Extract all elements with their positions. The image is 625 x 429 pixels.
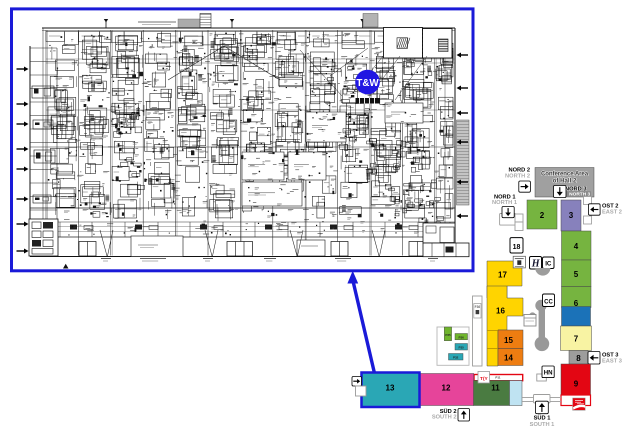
svg-text:IC: IC <box>545 261 552 268</box>
svg-text:P35: P35 <box>445 333 451 337</box>
svg-text:18: 18 <box>513 244 521 251</box>
svg-text:Conference Area: Conference Area <box>541 170 589 177</box>
svg-text:HN: HN <box>544 370 553 377</box>
svg-text:4: 4 <box>574 242 579 251</box>
svg-text:P35: P35 <box>459 346 465 350</box>
svg-text:F36: F36 <box>475 305 481 309</box>
svg-text:5: 5 <box>574 270 579 279</box>
svg-text:SÜD 1: SÜD 1 <box>534 415 551 422</box>
svg-text:EAST 3: EAST 3 <box>602 359 622 365</box>
svg-text:SOUTH 2: SOUTH 2 <box>432 415 457 421</box>
svg-text:7: 7 <box>574 335 579 344</box>
svg-text:CC: CC <box>544 299 553 305</box>
svg-text:SOUTH 1: SOUTH 1 <box>530 422 555 428</box>
svg-text:NORTH 2: NORTH 2 <box>505 173 530 179</box>
svg-text:15: 15 <box>504 336 513 345</box>
svg-text:EAST 2: EAST 2 <box>602 209 622 215</box>
svg-text:T(Y: T(Y <box>480 376 489 382</box>
svg-text:8: 8 <box>576 354 581 363</box>
svg-text:NORTH 1: NORTH 1 <box>492 200 517 206</box>
svg-text:P36: P36 <box>459 335 465 339</box>
svg-text:9: 9 <box>574 380 579 389</box>
svg-text:3: 3 <box>569 211 574 220</box>
svg-text:of Hall 2: of Hall 2 <box>553 177 577 184</box>
svg-text:P32: P32 <box>453 356 459 360</box>
svg-text:14: 14 <box>504 354 513 363</box>
svg-text:13: 13 <box>386 384 395 393</box>
svg-text:11: 11 <box>491 384 500 393</box>
svg-text:P11: P11 <box>495 376 501 380</box>
svg-text:12: 12 <box>442 384 451 393</box>
svg-text:16: 16 <box>496 307 505 316</box>
svg-text:T&W: T&W <box>356 78 379 89</box>
svg-text:2: 2 <box>540 211 545 220</box>
svg-text:17: 17 <box>498 271 507 280</box>
